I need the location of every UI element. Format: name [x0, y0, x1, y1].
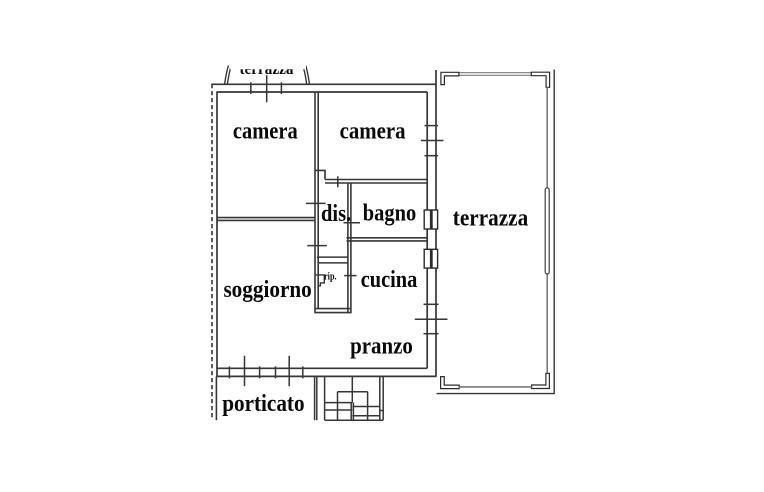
svg-text:soggiorno: soggiorno [223, 276, 311, 303]
svg-text:bagno: bagno [363, 200, 416, 227]
svg-text:terrazza: terrazza [453, 205, 528, 232]
svg-text:porticato: porticato [222, 390, 304, 417]
svg-text:pranzo: pranzo [350, 332, 413, 359]
svg-text:cucina: cucina [361, 266, 418, 293]
svg-text:rip.: rip. [324, 271, 337, 282]
svg-text:dis.: dis. [321, 200, 351, 227]
svg-text:camera: camera [340, 118, 406, 145]
svg-text:camera: camera [233, 118, 298, 145]
